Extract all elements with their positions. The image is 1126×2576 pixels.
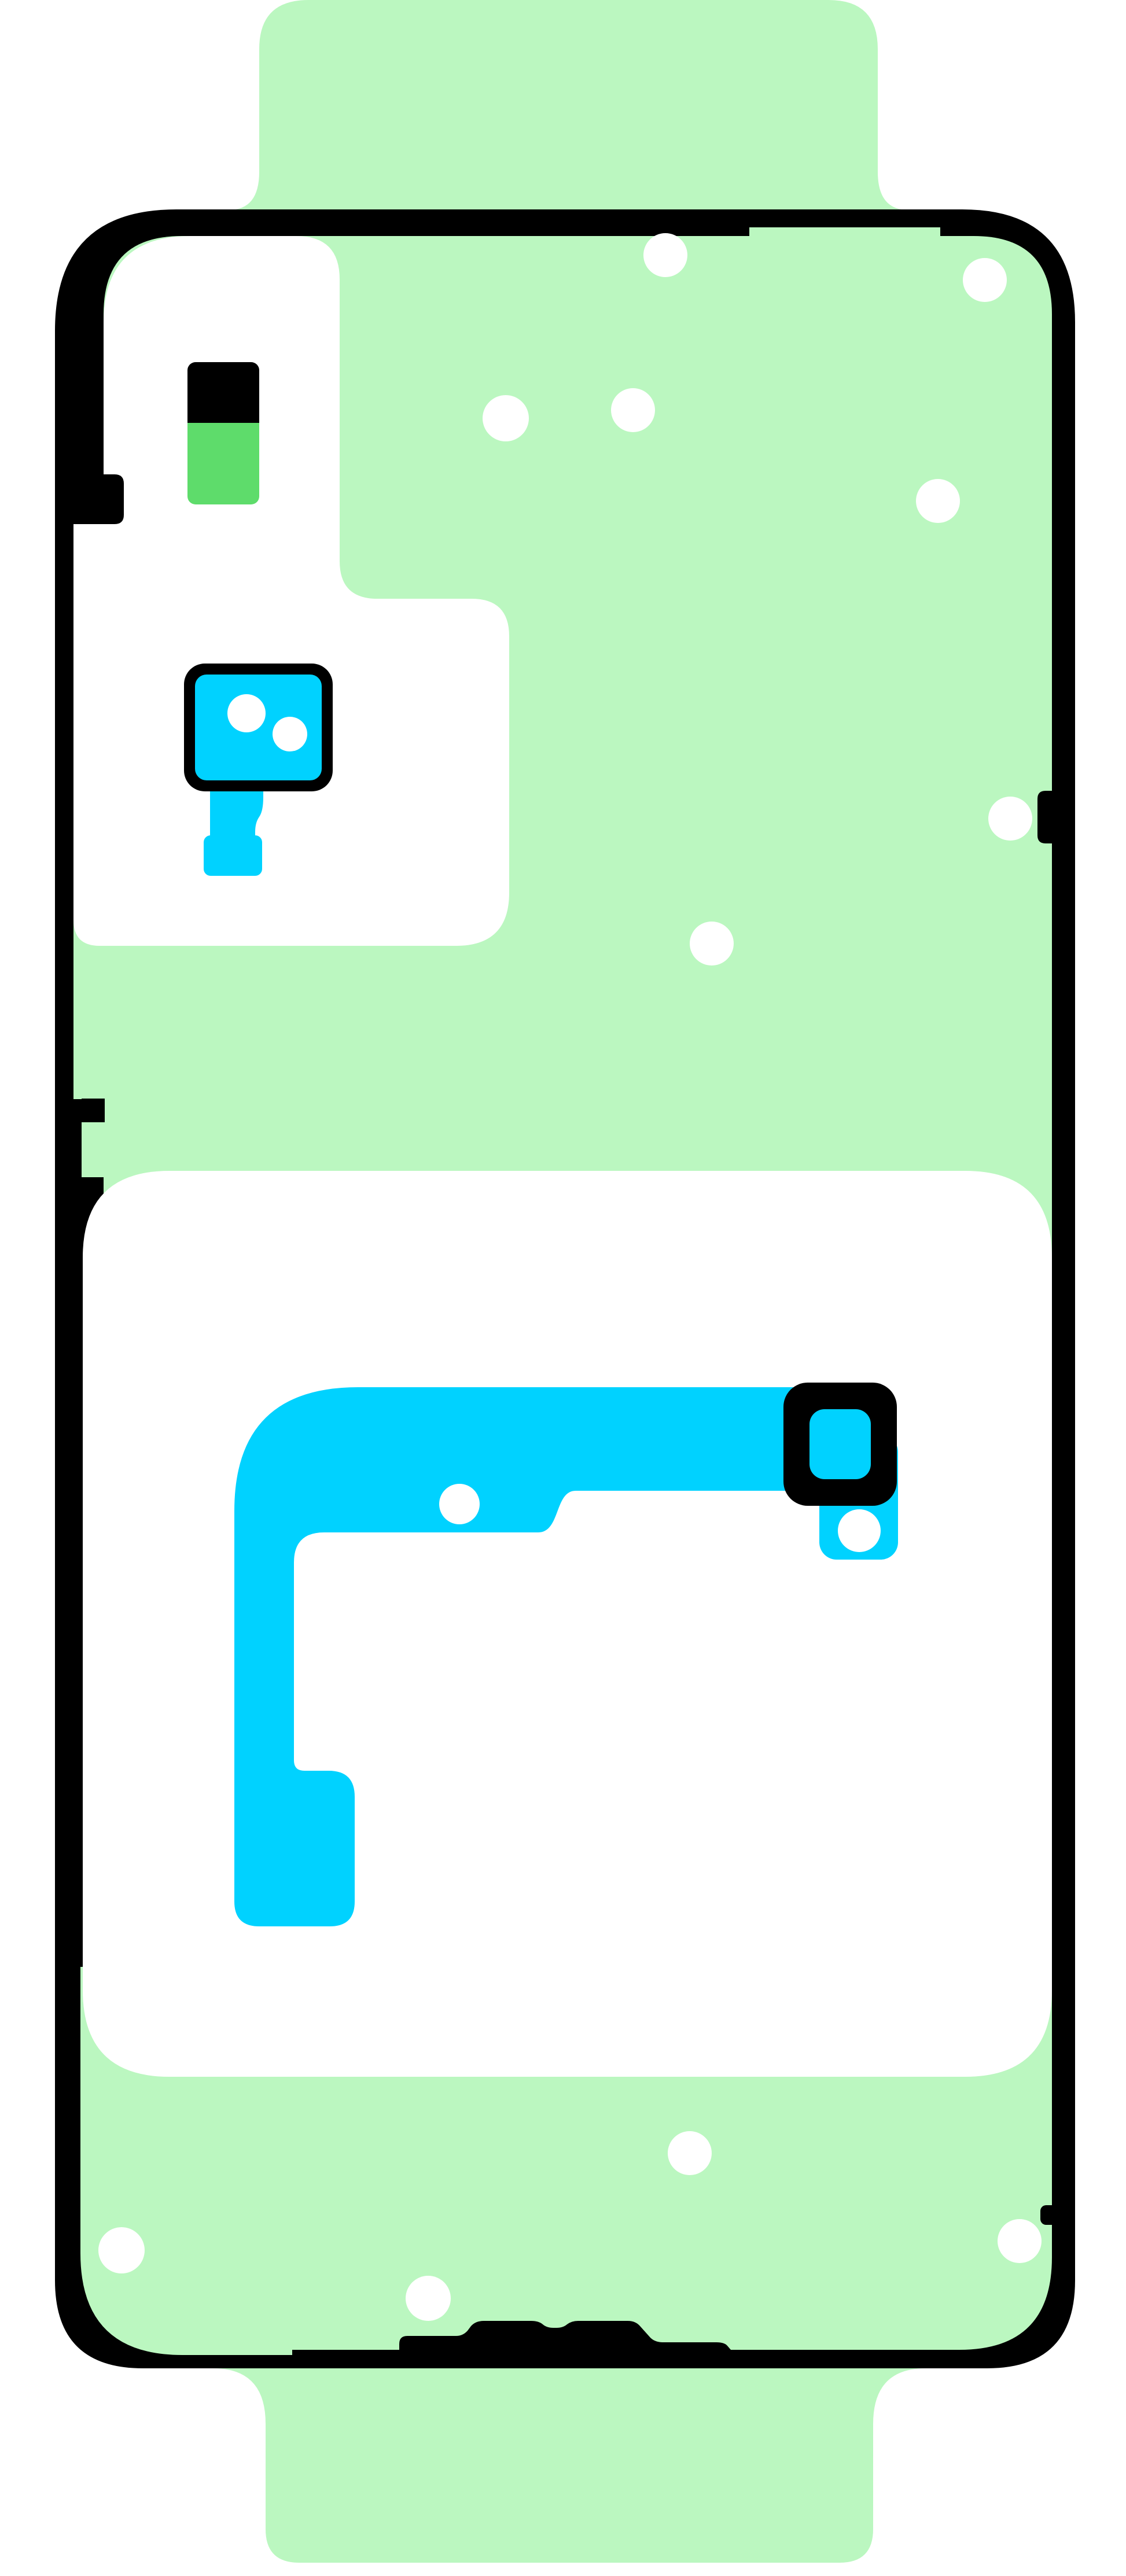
camera-bracket-foot (204, 835, 262, 876)
alignment-hole (98, 2227, 145, 2273)
alignment-hole (643, 233, 687, 277)
left-edge-step (82, 1099, 105, 1122)
camera-lens-hole (227, 694, 266, 732)
alignment-hole (483, 395, 529, 441)
alignment-hole (998, 2219, 1042, 2263)
alignment-hole (668, 2131, 712, 2175)
adhesive-sheet-diagram (0, 0, 1126, 2576)
alignment-hole (988, 797, 1032, 841)
alignment-hole (611, 388, 655, 432)
top-thin-strip (749, 227, 940, 277)
flash-mark-black-lower (187, 391, 259, 423)
camera-ring-window (809, 1409, 871, 1479)
left-edge-bump (55, 474, 124, 524)
adhesive-sheet-svg (0, 0, 1126, 2576)
camera-lens-hole (273, 717, 307, 751)
flash-mark-green-upper (187, 423, 259, 463)
alignment-hole (916, 479, 960, 523)
alignment-hole (838, 1509, 881, 1552)
center-cutout (83, 1171, 1052, 2077)
left-strip-lower (82, 1121, 117, 1177)
top-pull-tab (229, 0, 908, 210)
alignment-hole (439, 1484, 480, 1524)
alignment-hole (690, 922, 734, 965)
right-edge-notch-lower (1040, 2205, 1059, 2225)
alignment-hole (406, 2276, 451, 2321)
right-edge-notch-upper (1037, 791, 1059, 843)
alignment-hole (963, 258, 1007, 302)
bottom-pull-tab (213, 2368, 926, 2563)
top-right-step-4 (1025, 292, 1046, 327)
